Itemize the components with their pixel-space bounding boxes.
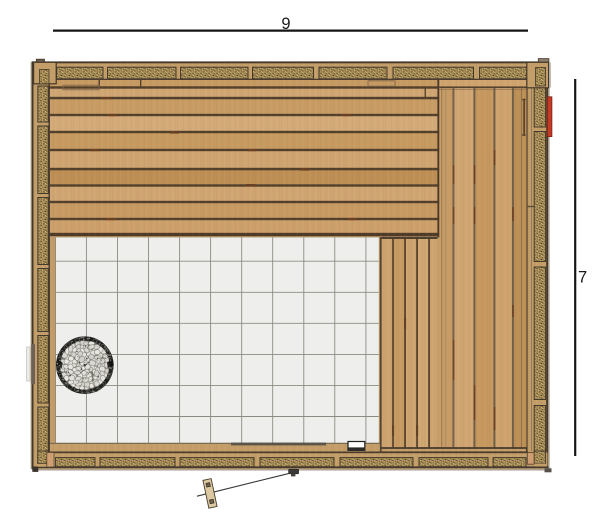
svg-text:7: 7: [578, 269, 587, 287]
svg-text:9: 9: [281, 15, 290, 33]
